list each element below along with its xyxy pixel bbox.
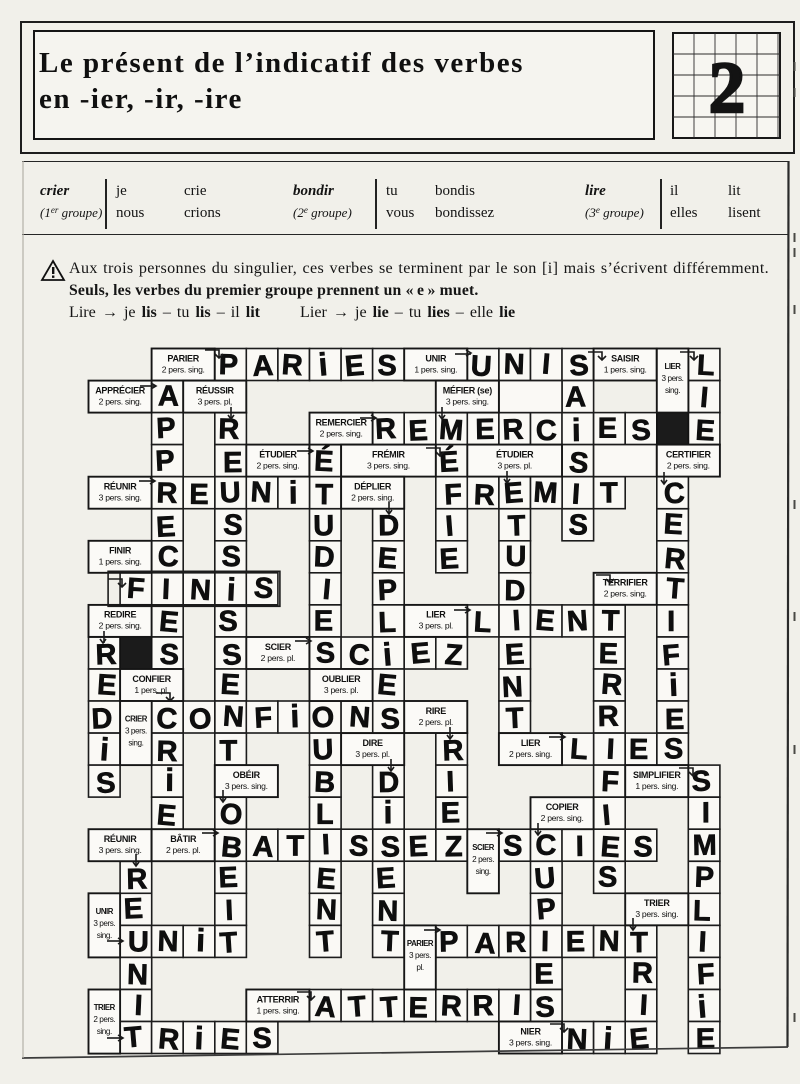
svg-text:i: i: [290, 698, 300, 734]
svg-text:I: I: [576, 831, 585, 863]
svg-text:P: P: [218, 349, 238, 381]
svg-text:N: N: [503, 348, 525, 381]
svg-text:E: E: [155, 511, 176, 544]
svg-text:i: i: [165, 762, 174, 798]
svg-text:CONFIER: CONFIER: [132, 674, 171, 684]
svg-text:3 pers. pl.: 3 pers. pl.: [419, 621, 453, 631]
svg-text:2 pers. sing.: 2 pers. sing.: [99, 621, 142, 631]
svg-text:LIER: LIER: [665, 362, 682, 371]
svg-text:3 pers. sing.: 3 pers. sing.: [225, 781, 268, 791]
svg-text:E: E: [218, 862, 239, 895]
svg-text:S: S: [252, 1023, 272, 1055]
svg-text:3 pers. pl.: 3 pers. pl.: [355, 749, 389, 759]
svg-text:S: S: [630, 414, 651, 447]
svg-text:T: T: [315, 926, 335, 959]
svg-text:S: S: [568, 509, 588, 542]
svg-text:NIER: NIER: [520, 1026, 541, 1036]
svg-text:L: L: [316, 799, 334, 831]
svg-text:R: R: [597, 701, 618, 733]
svg-text:3 pers. sing.: 3 pers. sing.: [367, 461, 410, 471]
svg-text:N: N: [501, 671, 523, 704]
svg-text:R: R: [95, 639, 117, 672]
svg-text:B: B: [314, 766, 336, 799]
svg-text:E: E: [377, 542, 399, 575]
svg-text:E: E: [408, 831, 429, 864]
svg-text:3 pers. pl.: 3 pers. pl.: [324, 685, 358, 695]
svg-text:S: S: [503, 830, 524, 863]
svg-text:I: I: [606, 734, 616, 766]
svg-text:S: S: [221, 541, 241, 573]
svg-text:F: F: [444, 479, 463, 512]
svg-text:E: E: [628, 1023, 650, 1056]
svg-text:E: E: [665, 704, 685, 736]
svg-text:i: i: [226, 571, 237, 607]
svg-text:REDIRE: REDIRE: [104, 610, 137, 620]
svg-text:S: S: [222, 509, 244, 542]
svg-text:E: E: [408, 992, 428, 1024]
svg-text:P: P: [155, 445, 176, 478]
svg-text:R: R: [442, 735, 464, 768]
svg-text:N: N: [566, 605, 589, 638]
svg-text:E: E: [96, 669, 117, 702]
svg-text:L: L: [378, 607, 397, 640]
svg-text:E: E: [376, 669, 398, 703]
svg-text:T: T: [507, 510, 526, 543]
svg-text:N: N: [127, 959, 149, 992]
svg-text:U: U: [505, 541, 526, 573]
svg-text:C: C: [155, 703, 178, 736]
svg-text:RÉUSSIR: RÉUSSIR: [196, 385, 235, 395]
svg-text:T: T: [600, 477, 618, 509]
svg-text:E: E: [598, 638, 618, 670]
svg-text:sing.: sing.: [128, 739, 143, 748]
svg-text:S: S: [253, 572, 275, 606]
svg-text:S: S: [159, 639, 179, 672]
svg-text:L: L: [693, 895, 712, 927]
svg-text:N: N: [348, 701, 371, 734]
svg-text:i: i: [194, 1020, 204, 1056]
svg-text:2 pers. sing.: 2 pers. sing.: [541, 813, 584, 823]
svg-text:1 pers. sing.: 1 pers. sing.: [414, 364, 457, 374]
svg-text:S: S: [377, 350, 397, 382]
svg-text:E: E: [440, 797, 460, 829]
svg-text:sing.: sing.: [97, 931, 112, 940]
svg-text:I: I: [702, 797, 710, 829]
svg-text:E: E: [696, 1023, 716, 1055]
svg-text:S: S: [568, 447, 590, 481]
svg-text:OBÉIR: OBÉIR: [233, 770, 261, 780]
svg-text:M: M: [692, 830, 717, 862]
svg-text:MÉFIER (se): MÉFIER (se): [443, 385, 493, 395]
svg-text:R: R: [472, 990, 494, 1022]
svg-text:SCIER: SCIER: [472, 843, 494, 852]
svg-text:S: S: [315, 637, 335, 670]
svg-text:R: R: [502, 414, 524, 447]
svg-text:UNIR: UNIR: [425, 353, 447, 363]
svg-text:E: E: [695, 414, 716, 447]
svg-text:SIMPLIFIER: SIMPLIFIER: [633, 770, 681, 780]
svg-text:3 pers. pl,: 3 pers. pl,: [198, 396, 232, 406]
svg-text:i: i: [289, 474, 298, 510]
svg-text:E: E: [315, 863, 337, 896]
svg-text:R: R: [218, 413, 240, 446]
svg-text:P: P: [377, 574, 398, 607]
svg-text:A: A: [252, 350, 275, 383]
svg-text:O: O: [310, 701, 335, 735]
svg-text:U: U: [312, 734, 334, 767]
svg-text:O: O: [219, 798, 243, 831]
svg-text:T: T: [505, 702, 524, 735]
svg-text:E: E: [344, 350, 366, 383]
svg-text:E: E: [439, 543, 460, 576]
svg-text:S: S: [691, 765, 712, 798]
svg-text:LIER: LIER: [521, 738, 541, 748]
svg-text:C: C: [663, 477, 685, 510]
svg-text:S: S: [218, 606, 238, 638]
svg-text:CERTIFIER: CERTIFIER: [666, 450, 712, 460]
svg-text:SAISIR: SAISIR: [611, 353, 640, 363]
svg-text:BÂTIR: BÂTIR: [170, 833, 197, 844]
svg-text:C: C: [347, 639, 371, 673]
svg-text:3 pers.: 3 pers.: [125, 727, 147, 736]
svg-text:3 pers. pl.: 3 pers. pl.: [497, 461, 531, 471]
svg-text:S: S: [380, 703, 401, 736]
svg-text:E: E: [534, 958, 554, 990]
svg-text:A: A: [565, 381, 586, 413]
svg-text:i: i: [571, 412, 581, 448]
svg-text:E: E: [566, 926, 586, 958]
svg-text:D: D: [504, 575, 525, 607]
svg-text:E: E: [314, 605, 333, 637]
svg-text:Z: Z: [445, 831, 463, 863]
svg-text:A: A: [158, 380, 179, 412]
svg-text:PARIER: PARIER: [407, 939, 434, 948]
svg-text:E: E: [375, 862, 396, 895]
svg-text:É: É: [438, 444, 459, 479]
svg-text:C: C: [535, 415, 557, 448]
svg-text:S: S: [534, 991, 555, 1024]
svg-text:T: T: [347, 991, 367, 1024]
svg-text:D: D: [313, 541, 335, 574]
svg-text:F: F: [254, 702, 273, 735]
svg-text:I: I: [225, 895, 234, 927]
svg-text:E: E: [223, 447, 243, 479]
svg-text:T: T: [315, 479, 333, 511]
svg-text:2 pers. pl.: 2 pers. pl.: [261, 653, 295, 663]
svg-text:sing.: sing.: [476, 867, 491, 876]
svg-text:FRÉMIR: FRÉMIR: [372, 450, 405, 460]
svg-text:T: T: [602, 605, 621, 637]
svg-text:S: S: [664, 733, 684, 765]
svg-text:1 pers. sing.: 1 pers. sing.: [99, 557, 142, 567]
svg-text:TRIER: TRIER: [644, 898, 670, 908]
svg-text:R: R: [663, 543, 687, 577]
svg-text:SCIER: SCIER: [265, 642, 292, 652]
svg-text:L: L: [569, 733, 589, 766]
svg-text:I: I: [134, 990, 143, 1022]
svg-text:M: M: [532, 476, 558, 509]
svg-text:S: S: [598, 861, 618, 893]
svg-text:LIER: LIER: [426, 610, 446, 620]
svg-text:2 pers. sing.: 2 pers. sing.: [99, 396, 142, 406]
svg-text:E: E: [408, 415, 429, 448]
svg-text:N: N: [566, 1023, 588, 1056]
svg-text:A: A: [314, 991, 337, 1025]
svg-text:U: U: [128, 926, 149, 958]
svg-text:I: I: [541, 926, 550, 958]
svg-text:N: N: [598, 925, 620, 958]
svg-text:U: U: [313, 510, 334, 542]
svg-text:P: P: [439, 926, 459, 958]
svg-text:3 pers.: 3 pers.: [409, 951, 431, 960]
svg-text:F: F: [126, 573, 146, 606]
svg-text:3 pers. sing.: 3 pers. sing.: [99, 493, 142, 503]
svg-text:U: U: [533, 862, 557, 896]
svg-text:N: N: [222, 700, 245, 733]
svg-text:DIRE: DIRE: [362, 738, 383, 748]
svg-text:P: P: [694, 862, 714, 895]
svg-text:P: P: [156, 412, 177, 445]
svg-text:F: F: [696, 958, 715, 991]
svg-text:I: I: [698, 926, 708, 958]
svg-text:2 pers. sing.: 2 pers. sing.: [667, 461, 710, 471]
svg-text:R: R: [157, 1023, 180, 1057]
svg-text:1 pers. sing.: 1 pers. sing.: [256, 1005, 299, 1015]
svg-text:U: U: [470, 350, 493, 383]
svg-text:RÉUNIR: RÉUNIR: [104, 482, 138, 492]
svg-text:sing.: sing.: [665, 386, 680, 395]
svg-text:PARIER: PARIER: [167, 353, 199, 363]
svg-text:L: L: [473, 606, 492, 639]
svg-text:R: R: [440, 990, 463, 1023]
svg-text:2 pers. sing.: 2 pers. sing.: [604, 589, 647, 599]
svg-text:R: R: [632, 957, 654, 989]
svg-text:E: E: [663, 508, 684, 541]
svg-text:2 pers. pl.: 2 pers. pl.: [419, 717, 453, 727]
svg-text:I: I: [667, 606, 675, 638]
svg-text:2 pers. sing.: 2 pers. sing.: [320, 428, 363, 438]
svg-text:ÉTUDIER: ÉTUDIER: [259, 450, 297, 460]
svg-text:B: B: [220, 831, 244, 865]
svg-text:S: S: [381, 831, 401, 863]
svg-text:O: O: [188, 703, 213, 736]
svg-text:3 pers. sing.: 3 pers. sing.: [635, 909, 678, 919]
svg-text:E: E: [504, 638, 525, 671]
svg-text:R: R: [126, 863, 148, 895]
svg-text:S: S: [348, 830, 370, 863]
svg-text:E: E: [219, 1023, 241, 1056]
svg-text:OUBLIER: OUBLIER: [322, 674, 361, 684]
svg-text:I: I: [446, 766, 455, 798]
svg-text:F: F: [601, 766, 620, 799]
svg-text:ATTERRIR: ATTERRIR: [257, 994, 300, 1004]
svg-text:i: i: [668, 667, 678, 703]
svg-text:3 pers. sing.: 3 pers. sing.: [446, 396, 489, 406]
svg-text:C: C: [157, 541, 179, 574]
svg-text:2 pers. pl.: 2 pers. pl.: [166, 845, 200, 855]
svg-text:pl.: pl.: [416, 963, 423, 972]
svg-text:E: E: [629, 734, 649, 766]
svg-text:3 pers. sing.: 3 pers. sing.: [99, 845, 142, 855]
svg-text:sing.: sing.: [97, 1027, 112, 1036]
svg-text:N: N: [315, 894, 337, 927]
svg-text:2 pers.: 2 pers.: [93, 1015, 115, 1024]
svg-text:COPIER: COPIER: [546, 802, 580, 812]
svg-text:E: E: [409, 637, 431, 671]
svg-text:T: T: [287, 831, 305, 863]
svg-text:2 pers. sing.: 2 pers. sing.: [509, 749, 552, 759]
svg-text:S: S: [221, 639, 243, 673]
svg-text:L: L: [696, 349, 715, 382]
svg-text:RÉUNIR: RÉUNIR: [104, 834, 138, 844]
svg-text:N: N: [189, 574, 212, 607]
svg-text:APPRÉCIER: APPRÉCIER: [95, 385, 146, 395]
svg-text:S: S: [95, 767, 116, 800]
svg-text:1 pers. sing.: 1 pers. sing.: [635, 781, 678, 791]
svg-text:T: T: [380, 926, 399, 959]
svg-text:T: T: [123, 1021, 144, 1054]
svg-text:E: E: [220, 668, 241, 701]
svg-text:3 pers. sing.: 3 pers. sing.: [509, 1037, 552, 1047]
svg-text:ÉTUDIER: ÉTUDIER: [496, 450, 534, 460]
svg-text:A: A: [252, 831, 275, 864]
svg-text:T: T: [379, 991, 399, 1024]
svg-text:1 pers. sing.: 1 pers. sing.: [604, 364, 647, 374]
svg-text:i: i: [383, 794, 392, 830]
svg-text:A: A: [474, 928, 496, 961]
svg-text:T: T: [630, 927, 648, 959]
svg-text:3 pers.: 3 pers.: [662, 374, 684, 383]
svg-text:Z: Z: [444, 639, 464, 672]
svg-text:TRIER: TRIER: [94, 1003, 116, 1012]
svg-text:2 pers. sing.: 2 pers. sing.: [256, 461, 299, 471]
svg-text:S: S: [568, 349, 590, 382]
svg-text:R: R: [281, 349, 304, 382]
svg-text:E: E: [156, 799, 178, 832]
svg-text:T: T: [219, 927, 239, 960]
svg-text:R: R: [505, 927, 526, 959]
svg-text:E: E: [158, 606, 180, 640]
svg-text:R: R: [156, 477, 178, 510]
svg-text:I: I: [161, 574, 170, 606]
svg-text:2 pers. sing.: 2 pers. sing.: [351, 493, 394, 503]
svg-text:FINIR: FINIR: [109, 546, 132, 556]
svg-text:UNIR: UNIR: [96, 907, 114, 916]
svg-text:P: P: [535, 893, 557, 926]
svg-text:N: N: [250, 476, 273, 509]
svg-text:S: S: [633, 831, 653, 864]
svg-text:2 pers.: 2 pers.: [472, 855, 494, 864]
svg-text:N: N: [157, 926, 179, 959]
svg-text:É: É: [313, 443, 334, 478]
svg-text:3 pers.: 3 pers.: [93, 919, 115, 928]
svg-text:T: T: [665, 573, 685, 606]
svg-text:DÉPLIER: DÉPLIER: [354, 482, 392, 492]
svg-text:T: T: [219, 735, 237, 767]
svg-text:i: i: [196, 922, 206, 958]
svg-text:CRIER: CRIER: [125, 715, 148, 724]
svg-text:I: I: [321, 829, 330, 861]
svg-text:E: E: [599, 831, 621, 864]
svg-text:RIRE: RIRE: [426, 706, 447, 716]
svg-text:E: E: [598, 413, 617, 445]
svg-text:R: R: [473, 479, 495, 512]
svg-text:2 pers. sing.: 2 pers. sing.: [162, 364, 205, 374]
svg-text:E: E: [123, 893, 144, 926]
svg-text:U: U: [219, 477, 241, 510]
svg-text:R: R: [600, 668, 623, 701]
svg-text:N: N: [377, 895, 399, 927]
svg-text:REMERCIER: REMERCIER: [315, 417, 367, 427]
svg-text:E: E: [189, 479, 209, 511]
svg-text:E: E: [475, 414, 495, 446]
svg-text:E: E: [534, 604, 556, 637]
svg-text:R: R: [374, 413, 396, 446]
